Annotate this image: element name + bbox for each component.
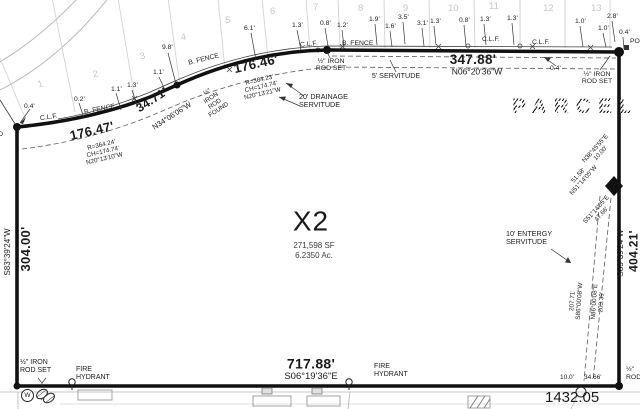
bottom-distance: 717.88' <box>287 357 335 372</box>
offset-tick-label: 1.6' <box>385 23 396 30</box>
offset-tick-label: 9.8' <box>162 44 173 51</box>
lot-number: 7 <box>313 3 318 13</box>
offset-tick-label: 2.8' <box>607 13 618 20</box>
five-ft-servitude-label: 5' SERVITUDE <box>372 72 420 80</box>
offset-tick-label: 0.4' <box>550 65 561 72</box>
clf-label: C.L.F. <box>482 36 500 43</box>
lot-number: 13 <box>591 4 602 14</box>
offset-tick-label: 3.1' <box>417 20 428 27</box>
offset-tick-label: 1.3' <box>127 82 138 89</box>
offset-tick-label: 1.3' <box>430 18 441 25</box>
offset-tick-label: 0.8' <box>459 17 470 24</box>
top-bearing: N06°20'36"W <box>452 68 503 77</box>
fire-hydrant-label: FIRE HYDRANT <box>374 363 408 378</box>
lot-number: 6 <box>270 7 275 17</box>
left-bearing: S83°39'24"W <box>4 228 12 275</box>
bottom-bearing: S06°19'36"E <box>284 372 337 382</box>
road-distance: 1432.05 <box>545 390 599 406</box>
offset-tick-label: 1.1' <box>153 69 164 76</box>
adjacent-parcel-label: PARCEL X <box>512 96 640 118</box>
offset-tick-label: 1.0' <box>598 25 609 32</box>
lot-number: 12 <box>543 4 554 14</box>
fire-hydrant-label: FIRE HYDRANT <box>76 366 110 381</box>
iron-rod-set-label: ½" IRON ROD SET <box>20 359 51 374</box>
offset-tick-label: 1.2' <box>337 22 348 29</box>
road-edge-lines <box>0 392 640 409</box>
survey-plat: 1 2 3 4 5 6 7 8 9 10 11 12 13 0.4' 0.2' … <box>0 0 640 409</box>
iron-rod-found-edge-label: IRON ROD FOUND <box>0 116 3 139</box>
lot-number: 5 <box>225 16 230 26</box>
offset-tick-label: 1.1' <box>111 86 122 93</box>
entergy-servitude-label: 10' ENTERGY SERVITUDE <box>506 230 552 246</box>
lot-number: 10 <box>448 4 459 14</box>
iron-rod-set-label: ½" IRON ROD SET <box>316 58 346 72</box>
clf-label: C.L.F. <box>532 39 550 46</box>
structures <box>78 388 490 408</box>
right-bearing: S83°39'24"W <box>617 229 625 276</box>
servitude-offset-2: 34.66' <box>584 375 602 382</box>
lot-number: 11 <box>489 2 499 12</box>
offset-tick-label: 0.4' <box>619 29 630 36</box>
offset-tick-label: 1.3' <box>292 22 303 29</box>
offset-tick-label: 0.8' <box>320 20 331 27</box>
iron-rod-set-label: ½" IRON ROD SET <box>582 71 612 85</box>
offset-tick-label: 1.0' <box>575 18 586 25</box>
offset-tick-label: 0.4' <box>24 103 35 110</box>
drainage-servitude-label: 20' DRAINAGE SERVITUDE <box>299 93 348 109</box>
parcel-id: X2 <box>293 206 329 235</box>
left-distance: 304.00' <box>19 227 33 272</box>
post-label: POST <box>630 38 640 45</box>
iron-rod-edge-right-label: ½" ROD <box>626 366 640 381</box>
leader-lines <box>20 21 624 386</box>
offset-tick-label: 1.3' <box>507 15 518 22</box>
offset-tick-label: 0.2' <box>74 96 85 103</box>
offset-tick-label: 1.9' <box>369 16 380 23</box>
offset-tick-label: 1.3' <box>480 16 491 23</box>
entergy-line-bearing-2: N86°00'08"E 203.39' <box>590 284 606 321</box>
top-distance: 347.88' <box>450 53 497 67</box>
parcel-area-sf: 271,598 SF <box>293 242 334 250</box>
entergy-line-bearing-1: 207.71' S86°00'08"W <box>568 282 585 320</box>
water-meter-symbol: W <box>21 389 34 402</box>
lot-number: 8 <box>358 4 363 14</box>
servitude-offset-1: 10.0' <box>560 375 574 382</box>
b-fence-label: B. FENCE <box>342 40 373 47</box>
lot-number: 9 <box>403 4 408 14</box>
offset-tick-label: 3.5' <box>398 14 409 21</box>
parcel-area-ac: 6.2350 Ac. <box>295 252 333 260</box>
offset-tick-label: 6.1' <box>244 25 255 32</box>
right-distance: 404.21' <box>628 230 640 272</box>
